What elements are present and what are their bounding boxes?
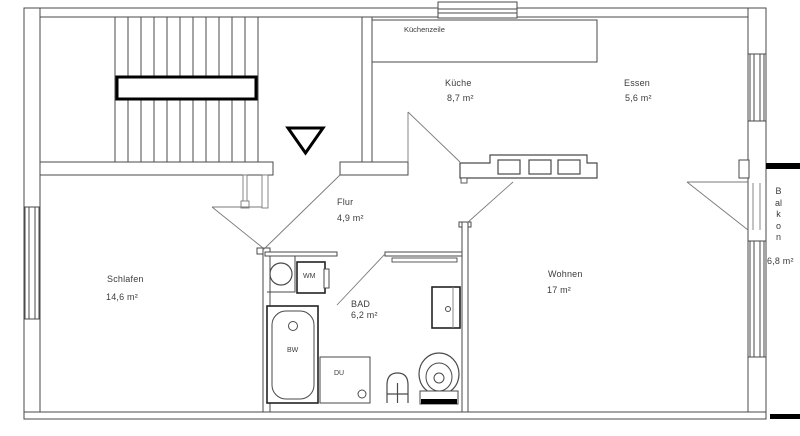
plan-linework xyxy=(0,0,800,436)
label-essen-area: 5,6 m² xyxy=(625,93,652,103)
bathroom-door xyxy=(337,254,385,305)
kitchen-counter-foot xyxy=(461,178,467,183)
wall-top xyxy=(24,8,766,17)
wall-stair-bottom xyxy=(40,162,273,175)
window-bedroom xyxy=(24,207,40,319)
wall-bottom xyxy=(24,412,766,419)
doors xyxy=(212,112,760,305)
cooktop-plates xyxy=(498,160,580,174)
bidet xyxy=(387,373,408,403)
label-bad-name: BAD xyxy=(351,299,370,309)
label-balkon-name: Balkon xyxy=(774,186,783,244)
window-living xyxy=(748,241,766,357)
bedroom-door xyxy=(212,207,263,248)
bathroom-fixtures xyxy=(267,256,460,404)
wall-bath-top-left xyxy=(265,252,337,256)
label-balkon-area: 6,8 m² xyxy=(767,256,794,266)
wall-bath-right xyxy=(462,222,468,412)
kitchen-fixtures xyxy=(372,20,597,183)
wall-bath-top-right xyxy=(385,252,463,256)
label-schlafen-area: 14,6 m² xyxy=(106,292,138,302)
bathtub xyxy=(267,306,318,403)
label-essen-name: Essen xyxy=(624,78,650,88)
balcony-wall-bottom xyxy=(770,414,800,419)
shower xyxy=(320,357,370,403)
floor-plan: Küchenzeile Küche 8,7 m² Essen 5,6 m² Fl… xyxy=(0,0,800,436)
label-shower: DU xyxy=(334,370,344,377)
label-wohnen-name: Wohnen xyxy=(548,269,583,279)
bath-cabinet xyxy=(432,287,460,328)
toilet xyxy=(419,353,459,404)
wall-stairwell-kitchen xyxy=(362,17,372,162)
wall-kitchen-south xyxy=(340,162,408,175)
label-washing-machine: WM xyxy=(303,273,315,280)
towel-rail xyxy=(392,258,457,262)
outer-walls xyxy=(24,8,766,419)
bath-sink xyxy=(267,256,295,292)
label-bad-area: 6,2 m² xyxy=(351,310,378,320)
entry-door xyxy=(241,175,340,250)
stair-landing-rail xyxy=(117,77,256,99)
balcony-walls xyxy=(766,163,800,419)
kitchen-door xyxy=(408,112,460,162)
label-flur-area: 4,9 m² xyxy=(337,213,364,223)
stairwell xyxy=(115,17,323,162)
living-room-door xyxy=(467,182,513,223)
balcony-wall-top xyxy=(766,163,800,169)
window-dining xyxy=(748,54,766,121)
label-kueche-name: Küche xyxy=(445,78,472,88)
label-bathtub: BW xyxy=(287,347,298,354)
label-kueche-area: 8,7 m² xyxy=(447,93,474,103)
wall-pier-bump xyxy=(739,160,749,178)
label-schlafen-name: Schlafen xyxy=(107,274,144,284)
label-flur-name: Flur xyxy=(337,197,353,207)
stair-direction-arrow xyxy=(288,128,323,153)
window-kitchen xyxy=(438,2,517,18)
label-kitchen-unit: Küchenzeile xyxy=(404,25,445,34)
label-wohnen-area: 17 m² xyxy=(547,285,571,295)
